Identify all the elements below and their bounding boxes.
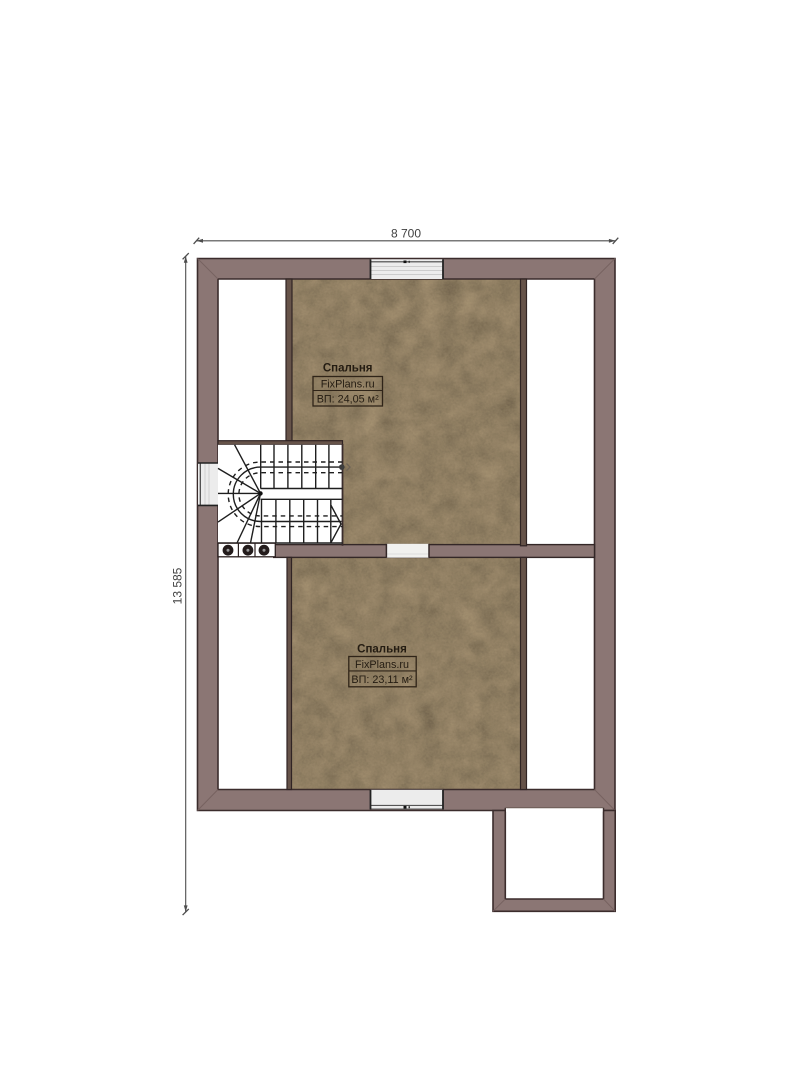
svg-text:8 700: 8 700 — [391, 226, 421, 240]
svg-text:ВП: 23,11 м²: ВП: 23,11 м² — [351, 674, 413, 686]
svg-text:Спальня: Спальня — [357, 644, 407, 656]
svg-text:FixPlans.ru: FixPlans.ru — [355, 659, 409, 671]
svg-text:13 585: 13 585 — [171, 567, 185, 604]
svg-text:FixPlans.ru: FixPlans.ru — [321, 379, 375, 391]
svg-text:ВП: 24,05 м²: ВП: 24,05 м² — [317, 393, 379, 405]
svg-text:Спальня: Спальня — [323, 363, 373, 375]
